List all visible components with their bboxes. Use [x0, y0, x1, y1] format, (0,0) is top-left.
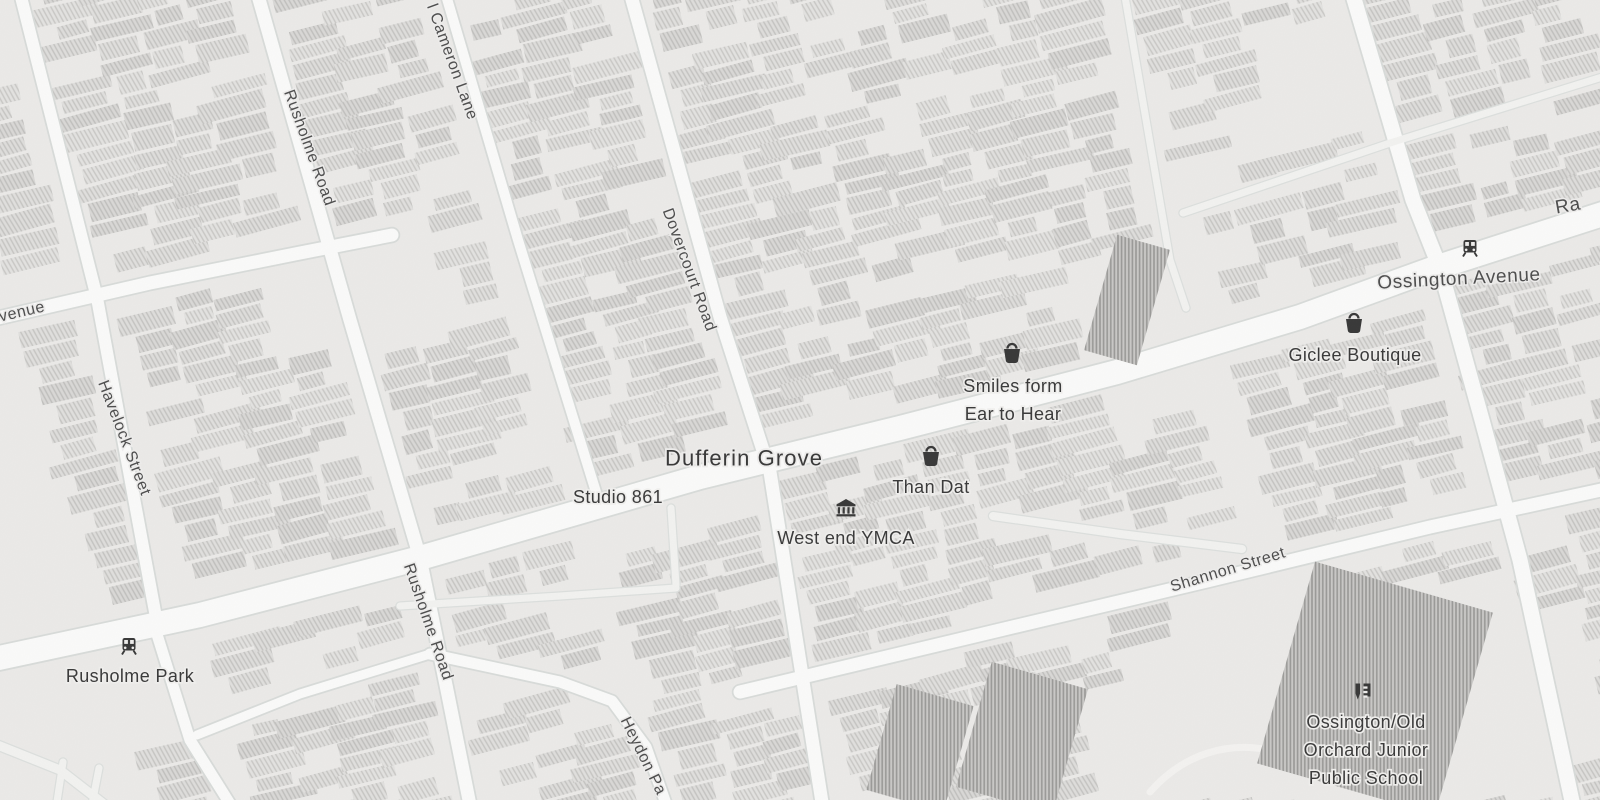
paper-texture: [0, 0, 1600, 800]
map-canvas[interactable]: Rusholme Roadl Cameron LaneDovercourt Ro…: [0, 0, 1600, 800]
map-svg: Rusholme Roadl Cameron LaneDovercourt Ro…: [0, 0, 1600, 800]
